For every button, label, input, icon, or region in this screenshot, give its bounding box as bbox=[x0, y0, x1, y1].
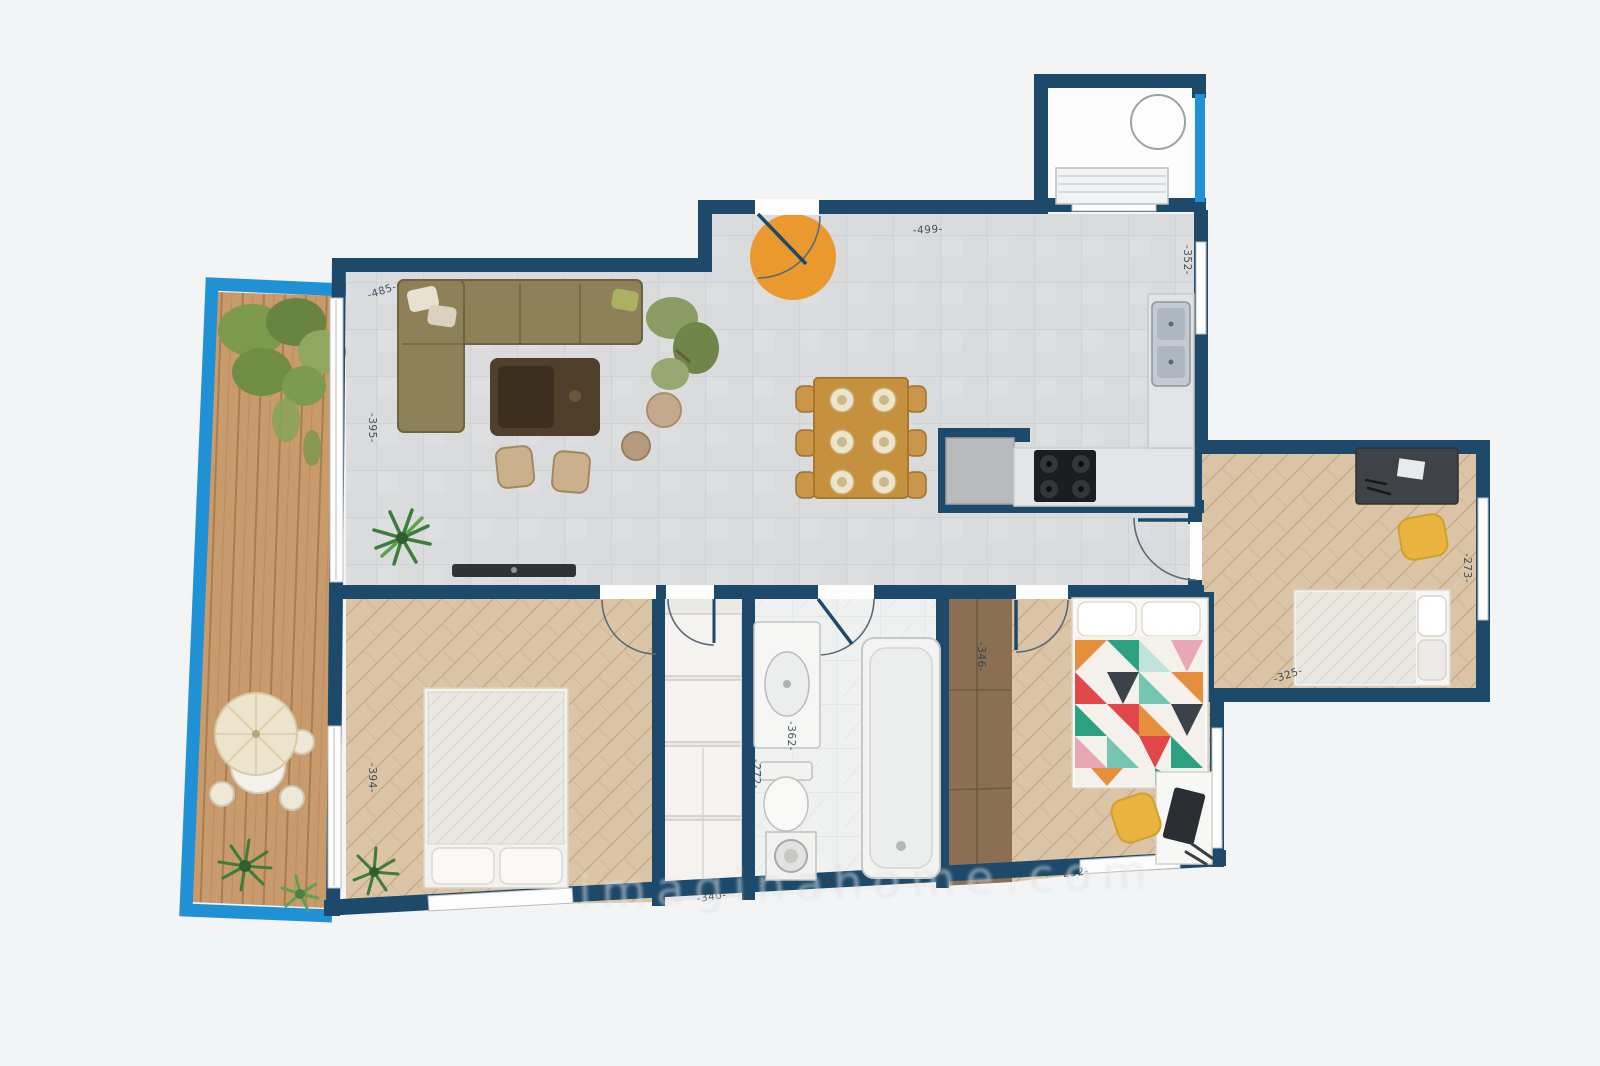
balcony-railing bbox=[1195, 94, 1205, 202]
bed1-pillow bbox=[500, 848, 562, 884]
closet-shelves bbox=[664, 614, 742, 886]
dim-living-left: -395- bbox=[366, 413, 378, 443]
dim-wardrobe: -346- bbox=[975, 642, 987, 672]
dim-bedroom3-right: -273- bbox=[1461, 553, 1473, 583]
dim-entry-top: -499- bbox=[912, 223, 943, 237]
bed2-pillow bbox=[1142, 602, 1200, 636]
ac-unit bbox=[1056, 168, 1168, 204]
floor-plan-canvas: -485- -499- -395- -352- -273- -325- -394… bbox=[0, 0, 1600, 1066]
bed3 bbox=[1294, 590, 1450, 686]
kitchen-island bbox=[946, 438, 1014, 504]
toilet bbox=[760, 762, 812, 831]
dim-bathroom: -362- bbox=[785, 721, 797, 751]
tv-console bbox=[452, 564, 576, 577]
cooktop bbox=[1034, 450, 1096, 502]
pouf bbox=[622, 432, 650, 460]
coffee-table bbox=[490, 358, 600, 436]
pouf bbox=[647, 393, 681, 427]
bathtub bbox=[862, 638, 940, 878]
kitchen-sink bbox=[1152, 302, 1190, 386]
bed1-pillow bbox=[432, 848, 494, 884]
dim-kitchen-right: -352- bbox=[1181, 245, 1193, 275]
terrace bbox=[186, 284, 346, 916]
boiler bbox=[1131, 95, 1185, 149]
entry-rug bbox=[750, 214, 836, 300]
bed3-desk bbox=[1356, 448, 1458, 504]
bed1-duvet bbox=[428, 692, 564, 844]
dining-set bbox=[796, 378, 926, 498]
parasol-icon bbox=[215, 693, 297, 775]
bed2-pillow bbox=[1078, 602, 1136, 636]
dim-bedroom1-left: -394- bbox=[366, 763, 378, 793]
dim-bathroom-left: -272- bbox=[750, 759, 762, 789]
bed3-chair bbox=[1397, 512, 1450, 561]
